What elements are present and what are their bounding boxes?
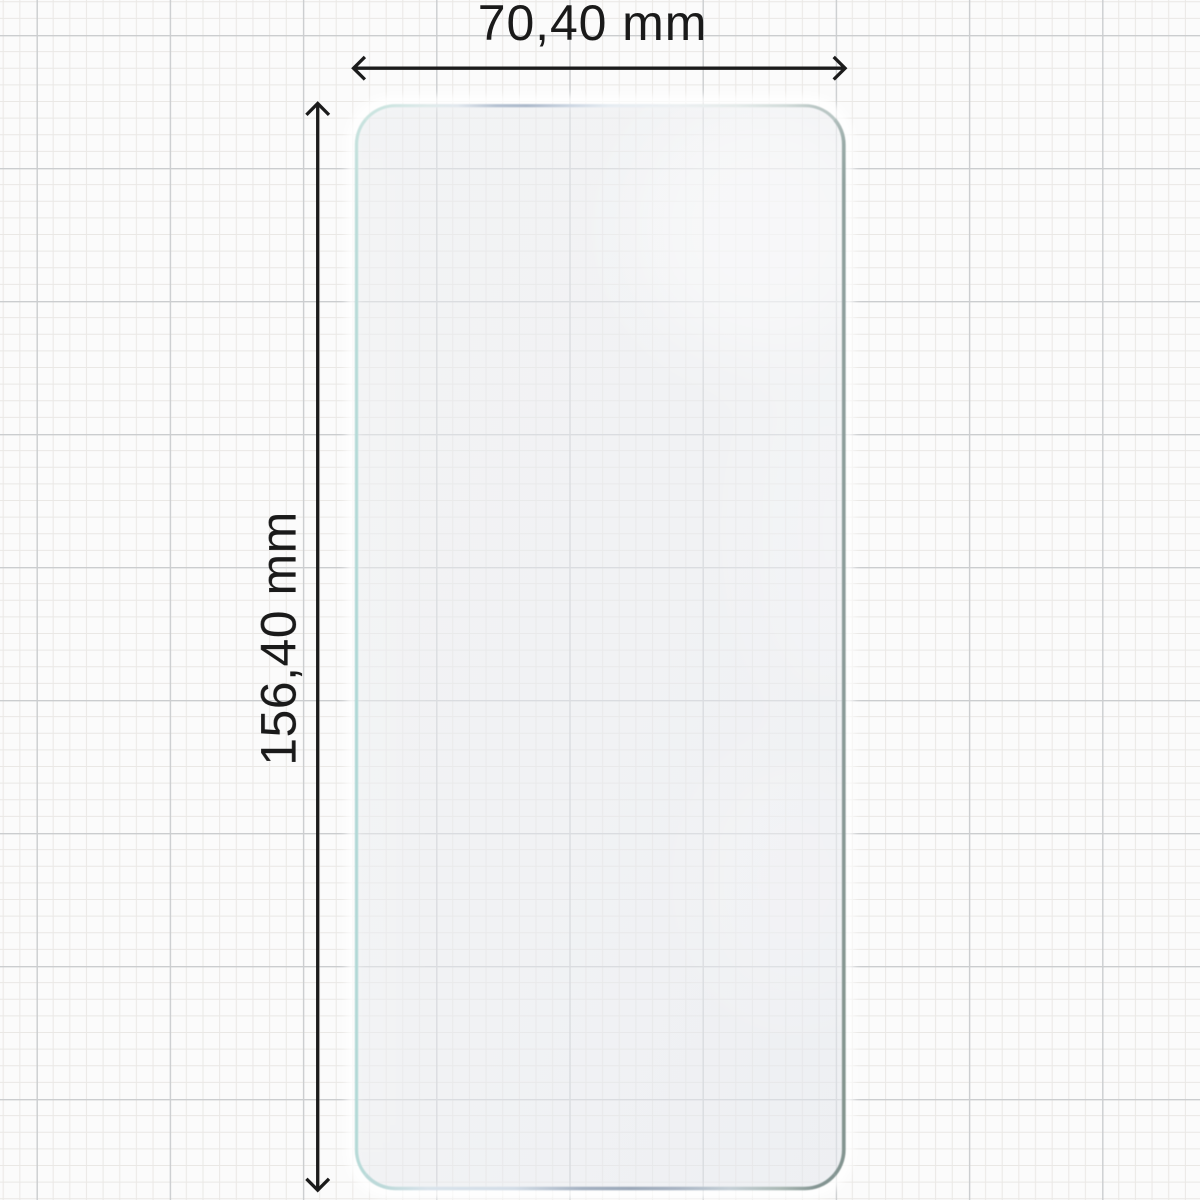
svg-text:156,40 mm: 156,40 mm bbox=[251, 511, 307, 766]
svg-text:70,40 mm: 70,40 mm bbox=[478, 0, 708, 51]
